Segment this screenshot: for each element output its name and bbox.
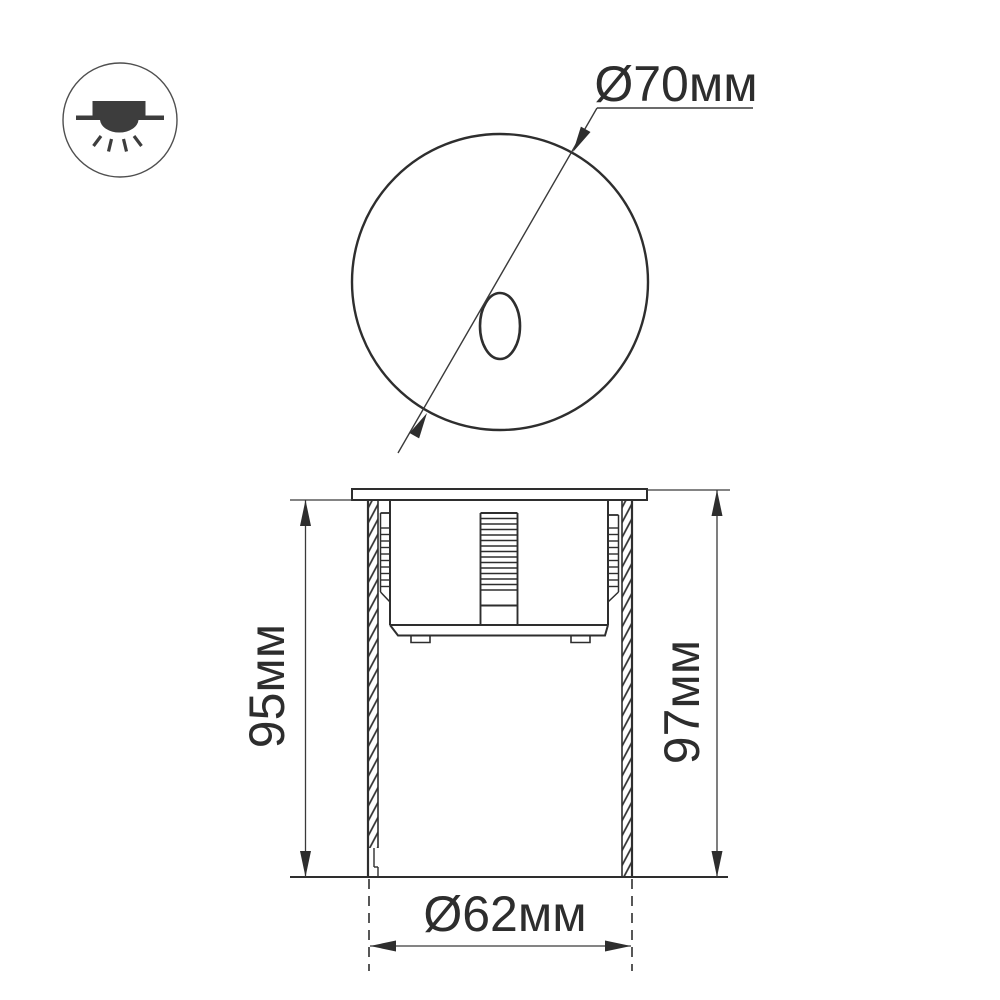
arrowhead-right-62 [605, 941, 631, 952]
arrowhead-up-95 [300, 500, 311, 526]
tube-wall-right [622, 500, 632, 877]
dimension-recess-depth-95: 95мм [239, 500, 352, 877]
body-foot-right [571, 636, 590, 643]
icon-light-rays [94, 136, 142, 152]
arrowhead-left-62 [370, 941, 396, 952]
fin-strip-left [381, 513, 391, 602]
recessed-downlight-icon [63, 63, 177, 177]
body-foot-left [411, 636, 430, 643]
icon-light-dome [100, 120, 139, 133]
arrowhead-down-95 [300, 851, 311, 877]
flange [352, 489, 647, 500]
central-fin-column [481, 513, 518, 625]
dimension-cutout-62: Ø62мм [369, 879, 632, 971]
icon-ceiling-line [76, 116, 164, 121]
diameter-dimension-line [398, 108, 597, 453]
wall-hatch-left [368, 500, 378, 848]
dimension-label-cutout-diameter: Ø62мм [423, 886, 586, 942]
arrowhead-down-97 [712, 851, 723, 877]
diameter-dimension-70: Ø70мм [398, 56, 758, 453]
technical-drawing-page: Ø70мм [0, 0, 1000, 1000]
front-face-circle [352, 134, 648, 430]
lens-opening-ellipse [480, 293, 520, 359]
tube-wall-left [368, 500, 378, 877]
icon-fixture-body [93, 101, 146, 117]
lamp-body [390, 500, 608, 643]
arrowhead-upper [573, 127, 591, 152]
dimension-label-recess-depth: 95мм [239, 624, 295, 748]
fin-strip-right [608, 515, 619, 602]
dimension-label-top-diameter: Ø70мм [594, 56, 757, 112]
wall-hatch-right [622, 500, 632, 877]
top-view: Ø70мм [352, 56, 758, 453]
technical-drawing-canvas: Ø70мм [0, 0, 1000, 1000]
dimension-total-height-97: 97мм [647, 490, 730, 877]
dimension-label-total-height: 97мм [654, 640, 710, 764]
arrowhead-up-97 [712, 490, 723, 516]
body-bottom-taper [390, 625, 608, 636]
